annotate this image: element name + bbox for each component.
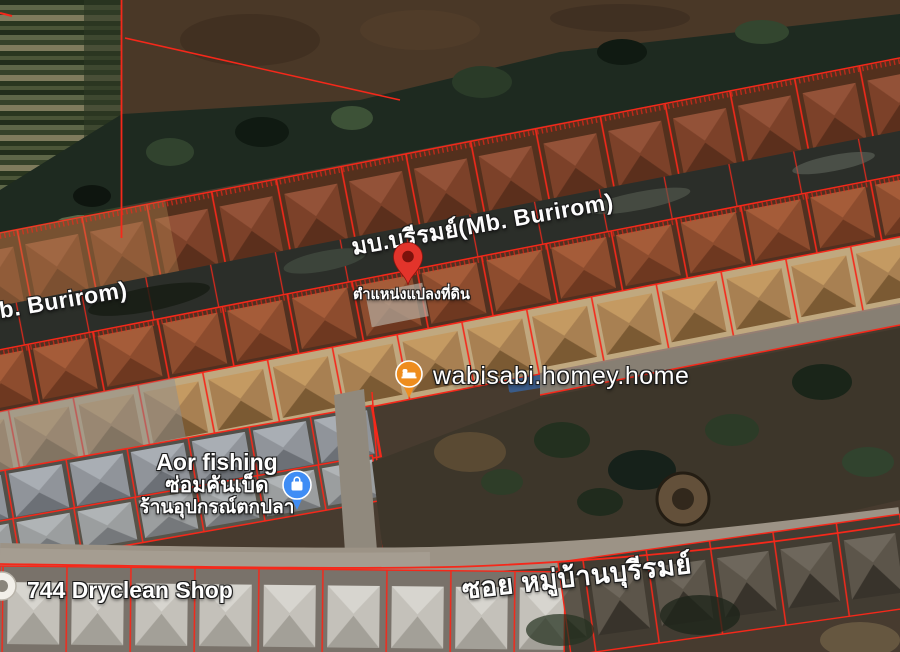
lodging-pin-icon[interactable]	[394, 360, 424, 400]
location-pin-icon[interactable]	[391, 241, 425, 289]
satellite-map-canvas[interactable]: มบ.บุรีรมย์(Mb. Burirom) (Mb. Burirom) ต…	[0, 0, 900, 652]
place-label-dryclean[interactable]: 744 Dryclean Shop	[27, 577, 233, 604]
satellite-imagery	[0, 0, 900, 652]
place-label-homestay[interactable]: wabisabi.homey.home	[433, 362, 689, 391]
shopping-pin-icon[interactable]	[281, 470, 313, 512]
place-circle-icon[interactable]	[0, 570, 18, 604]
